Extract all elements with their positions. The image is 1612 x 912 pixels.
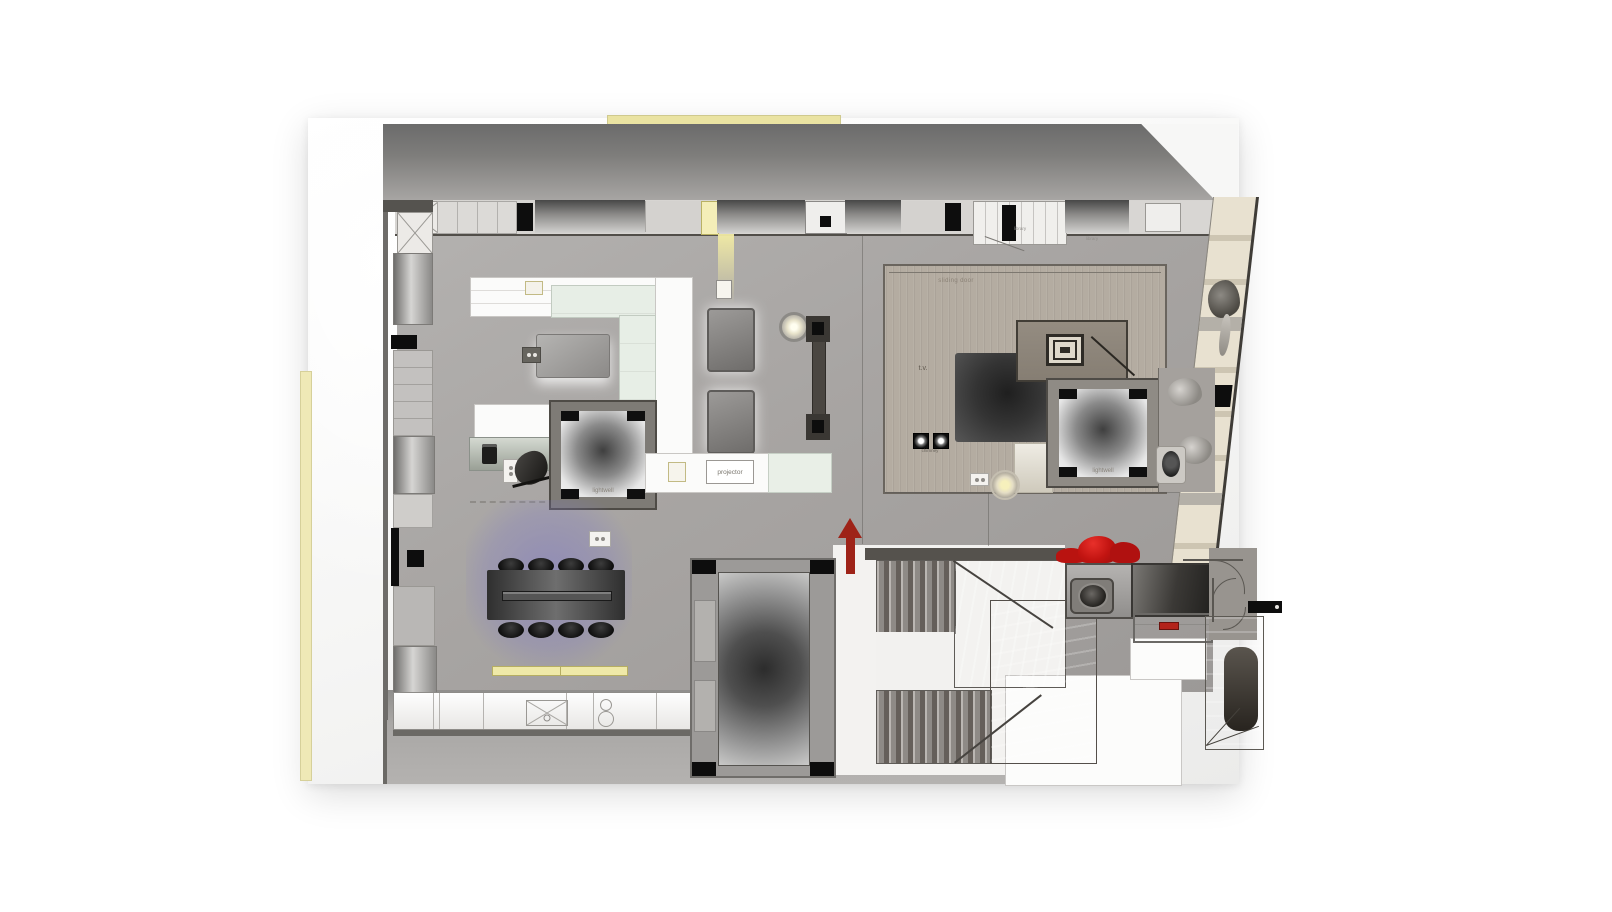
sofa-l-back-right xyxy=(655,277,693,471)
shaft-side-panel xyxy=(694,600,716,662)
door-leaf-black xyxy=(945,203,961,231)
red-tag xyxy=(1159,622,1179,630)
laptop xyxy=(482,444,497,464)
pendant-lamp xyxy=(779,312,809,342)
shaft-corner xyxy=(810,762,834,776)
kitchen-counter xyxy=(393,692,701,730)
shaft-corner xyxy=(810,560,834,574)
door-leaf-black xyxy=(407,550,424,567)
armchair xyxy=(707,390,755,454)
wall-white-box xyxy=(805,201,847,234)
door-leaf-black xyxy=(391,528,399,586)
wall-hatch-box xyxy=(397,212,433,254)
projector-label: projector xyxy=(717,469,742,476)
exterior-shadow-band xyxy=(383,124,1238,202)
arrow-shaft xyxy=(846,537,855,574)
wash-basin xyxy=(1078,583,1108,609)
socket-dot xyxy=(509,472,513,476)
screen-cap xyxy=(806,316,830,342)
media-bench-mint xyxy=(768,453,832,493)
toilet-bowl xyxy=(1162,451,1180,477)
door-leaf-black xyxy=(517,203,533,231)
arrow-head xyxy=(838,518,862,538)
wall-segment xyxy=(1065,200,1129,233)
stair-winder-lower xyxy=(990,600,1097,764)
socket-dot xyxy=(595,537,599,541)
dining-table xyxy=(487,570,625,620)
table-connector xyxy=(522,347,541,363)
wall-light-segment xyxy=(393,494,433,528)
screen-cap-core xyxy=(812,322,824,335)
wall-segment xyxy=(393,253,433,325)
stair-run-bottom xyxy=(876,690,992,764)
lightwell-corner xyxy=(561,489,579,499)
wall-panel xyxy=(393,586,435,646)
projector-box: projector xyxy=(706,460,754,484)
lightwell-corner xyxy=(1059,467,1077,477)
counter-divider xyxy=(483,693,484,729)
shaft-corner xyxy=(692,762,716,776)
counter-divider xyxy=(593,693,594,729)
handrail-dot xyxy=(1275,605,1279,609)
elevator-shaft xyxy=(690,558,836,778)
dining-chair xyxy=(588,622,614,638)
wall-light-segment xyxy=(645,201,702,232)
closet-symbol xyxy=(1046,334,1084,366)
table-lamp xyxy=(990,470,1020,500)
screen-cap xyxy=(806,414,830,440)
counter-divider xyxy=(656,693,657,729)
red-sofa-lobe xyxy=(1110,542,1140,563)
wall-segment xyxy=(535,200,645,233)
lightwell-shaft xyxy=(561,411,645,497)
staircase-main xyxy=(855,545,1065,775)
table-runner xyxy=(502,591,612,601)
white-room-upper xyxy=(1130,638,1207,680)
floor-plan-canvas: library library xyxy=(0,0,1612,912)
kitchen-sink xyxy=(526,700,568,726)
bedroom-rail-line xyxy=(889,272,1161,273)
strip-divider xyxy=(560,667,561,675)
cooktop-burner xyxy=(600,699,612,711)
stair-landing xyxy=(876,632,954,690)
lightwell-corner xyxy=(627,411,645,421)
hatch-x-icon xyxy=(398,213,432,253)
elevator-cab xyxy=(718,572,810,766)
socket-box xyxy=(970,473,989,486)
wall-control-box xyxy=(716,280,732,299)
socket-dot xyxy=(981,478,985,482)
socket-box xyxy=(589,531,611,547)
left-wall xyxy=(383,200,433,720)
lightwell-bedroom: lightwell xyxy=(1046,378,1160,488)
lightwell-corner xyxy=(627,489,645,499)
armchair xyxy=(707,308,755,372)
coffee-table xyxy=(536,334,610,378)
winder-stair xyxy=(1205,616,1264,750)
desk-top xyxy=(474,404,556,440)
top-wall xyxy=(395,200,1215,236)
connector-dot xyxy=(533,353,537,357)
door-leaf-black xyxy=(1002,205,1016,241)
screen-cap-core xyxy=(812,420,824,433)
storage-room xyxy=(973,201,1067,245)
socket-dot xyxy=(601,537,605,541)
lightwell-corner xyxy=(561,411,579,421)
lightwell-living: lightwell xyxy=(549,400,657,510)
wall-light-segment xyxy=(901,201,945,232)
chimney-vent xyxy=(933,433,949,449)
sink-icon xyxy=(527,701,567,725)
wall-white-box xyxy=(1145,203,1181,232)
red-sofa xyxy=(1056,536,1140,563)
lightwell-corner xyxy=(1059,389,1077,399)
connector-dot xyxy=(527,353,531,357)
door-leaf-black xyxy=(820,216,831,227)
wall-grid-panel xyxy=(437,201,517,234)
floor-light-strip xyxy=(492,666,628,676)
dining-chair xyxy=(528,622,554,638)
sofa-l-seat-top xyxy=(551,285,657,318)
cooktop-burner xyxy=(598,711,614,727)
wall-segment xyxy=(393,436,435,494)
door-leaf-line xyxy=(1212,578,1214,622)
counter-divider xyxy=(439,693,440,729)
shaft-side-panel xyxy=(694,680,716,732)
dark-counter xyxy=(1131,563,1211,617)
door-leaf-black xyxy=(391,335,417,349)
wardrobe-gap xyxy=(1179,493,1222,505)
chimney-vent xyxy=(913,433,929,449)
wall-light-segment xyxy=(1129,201,1213,232)
wall-segment xyxy=(845,200,901,233)
wall-edge xyxy=(383,200,388,720)
partition-line-v1 xyxy=(862,232,863,544)
dining-chair xyxy=(558,622,584,638)
lightwell-corner xyxy=(1129,467,1147,477)
socket-dot xyxy=(509,466,513,470)
lightwell-corner xyxy=(1129,389,1147,399)
door-leaf-line xyxy=(1183,559,1243,561)
wall-segment xyxy=(717,200,805,233)
drawer-unit xyxy=(1133,613,1213,643)
dining-chair xyxy=(498,622,524,638)
skylight-strip-left xyxy=(300,371,312,781)
socket-dot xyxy=(975,478,979,482)
stair-run-top xyxy=(876,560,956,634)
wall-grid-panel xyxy=(393,350,433,438)
wall-control-box xyxy=(668,462,686,482)
wall-corner-block xyxy=(383,200,433,212)
plant xyxy=(1208,280,1240,318)
wash-basin-organic xyxy=(1168,378,1202,406)
partition-line-v2 xyxy=(988,492,989,546)
stair-top-band xyxy=(865,548,1065,560)
handrail-bar xyxy=(1248,601,1282,613)
closet-symbol-core xyxy=(1060,347,1070,353)
counter-divider xyxy=(433,693,434,729)
shaft-corner xyxy=(692,560,716,574)
wall-control-box xyxy=(525,281,543,295)
lightwell-shaft xyxy=(1059,389,1147,477)
